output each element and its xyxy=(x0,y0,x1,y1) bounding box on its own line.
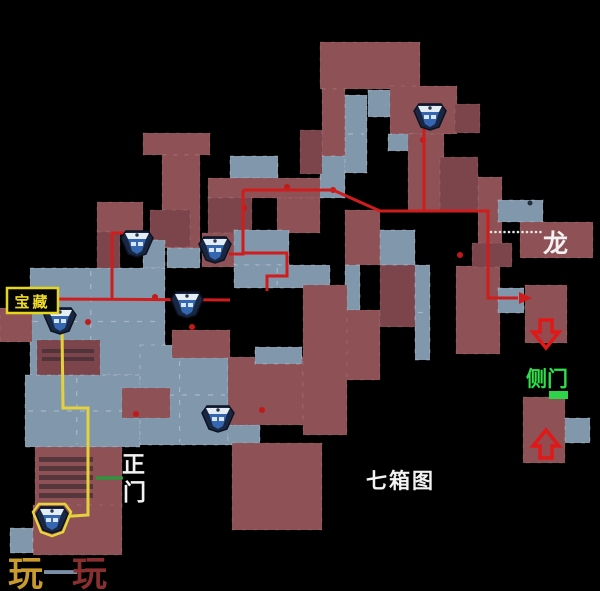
dotted-path-dot xyxy=(512,231,515,234)
treasure-label-text: 宝藏 xyxy=(14,293,50,311)
dotted-path-dot xyxy=(530,231,533,234)
map-room xyxy=(368,90,392,117)
map-room xyxy=(232,443,322,530)
shield-crest xyxy=(213,239,216,242)
stairs-mark xyxy=(42,357,94,361)
map-room xyxy=(498,200,543,222)
map-red-dot xyxy=(85,319,91,325)
shield-mark xyxy=(424,115,429,119)
map-room xyxy=(456,266,500,354)
shield-mark xyxy=(61,319,66,323)
map-red-dot xyxy=(259,407,265,413)
map-room xyxy=(455,104,480,133)
shield-crest xyxy=(50,509,53,512)
map-room xyxy=(122,388,170,418)
stairs-mark xyxy=(42,349,94,353)
map-room xyxy=(565,418,590,443)
map-room xyxy=(208,198,252,233)
dotted-path-dot xyxy=(503,231,506,234)
map-room xyxy=(228,425,260,445)
main-gate-label-char1: 正 xyxy=(122,451,145,477)
map-red-dot xyxy=(133,411,139,417)
main-gate-label-char2: 门 xyxy=(123,479,146,505)
stairs-mark xyxy=(39,475,93,480)
map-room xyxy=(143,133,210,155)
dotted-path-dot xyxy=(517,231,520,234)
map-room xyxy=(440,157,478,210)
map-room xyxy=(408,134,444,210)
shield-crest xyxy=(185,294,188,297)
map-room xyxy=(172,330,230,358)
shield-mark xyxy=(212,417,217,421)
map-dark-dot xyxy=(528,201,533,206)
dotted-path-dot xyxy=(499,231,502,234)
map-room xyxy=(97,232,120,268)
side-door-marker xyxy=(549,391,568,399)
dotted-path-dot xyxy=(521,231,524,234)
map-room xyxy=(320,42,420,89)
map-room xyxy=(208,178,320,198)
side-door-label: 侧门 xyxy=(526,367,568,391)
stairs-mark xyxy=(39,466,93,471)
watermark: 玩 一 玩 xyxy=(8,554,107,591)
stairs-mark xyxy=(39,484,93,489)
dotted-path-dot xyxy=(508,231,511,234)
shield-mark xyxy=(431,115,436,119)
stairs-mark xyxy=(39,457,93,462)
map-room xyxy=(322,89,345,156)
shield-crest xyxy=(428,106,431,109)
watermark-char-3: 玩 xyxy=(72,554,107,591)
map-room xyxy=(10,528,33,553)
shield-mark xyxy=(216,248,221,252)
map-room xyxy=(380,230,415,265)
map-room xyxy=(472,243,512,267)
shield-mark xyxy=(181,303,186,307)
map-room xyxy=(345,210,380,265)
map-name-label: 七箱图 xyxy=(366,469,435,493)
treasure-label: 宝藏 xyxy=(7,288,58,313)
stairs-mark xyxy=(39,493,93,498)
shield-mark xyxy=(138,242,143,246)
map-red-dot xyxy=(457,252,463,258)
map-room xyxy=(255,347,302,364)
map-room xyxy=(228,357,303,425)
map-room xyxy=(345,310,380,380)
shield-mark xyxy=(131,242,136,246)
map-room xyxy=(380,265,415,327)
shield-mark xyxy=(209,248,214,252)
dotted-path-dot xyxy=(494,231,497,234)
shield-mark xyxy=(188,303,193,307)
shield-mark xyxy=(54,319,59,323)
map-room xyxy=(300,130,322,174)
map-room xyxy=(230,156,278,178)
shield-mark xyxy=(53,518,58,522)
shield-crest xyxy=(216,408,219,411)
map-room xyxy=(167,248,200,268)
shield-crest xyxy=(135,233,138,236)
dotted-path-dot xyxy=(535,231,538,234)
map-canvas: 宝藏 龙 侧门 正 门 七箱图 玩 一 玩 xyxy=(0,0,600,591)
shield-mark xyxy=(219,417,224,421)
map-room xyxy=(97,202,143,232)
shield-mark xyxy=(46,518,51,522)
dragon-label: 龙 xyxy=(543,230,568,258)
map-room xyxy=(277,198,320,233)
dotted-path-dot xyxy=(526,231,529,234)
dotted-path-dot xyxy=(539,231,542,234)
map-red-dot xyxy=(189,324,195,330)
watermark-char-1: 玩 xyxy=(8,554,43,591)
map-room xyxy=(303,285,347,435)
game-map-screenshot: 宝藏 龙 侧门 正 门 七箱图 玩 一 玩 xyxy=(0,0,600,591)
dotted-path-dot xyxy=(490,231,493,234)
